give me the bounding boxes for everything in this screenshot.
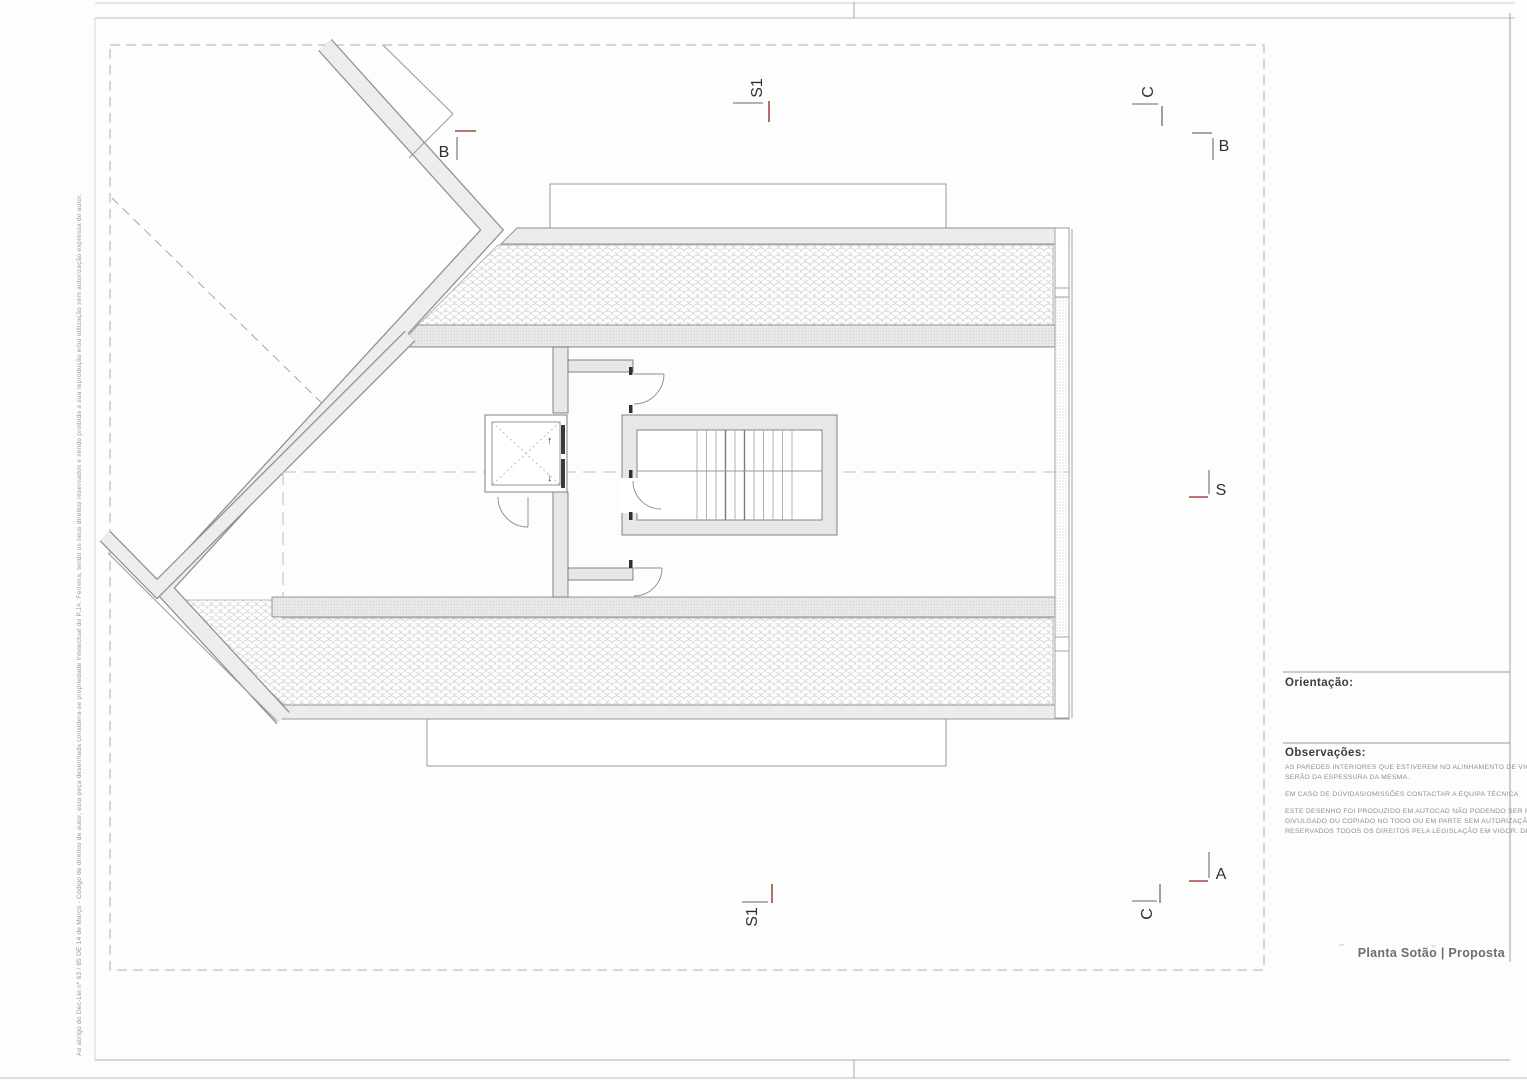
hidden-roof-edge xyxy=(112,198,332,413)
orientation-label: Orientação: xyxy=(1285,677,1353,689)
drawing-sheet: ↑ ↓ B S1 C B S xyxy=(0,0,1527,1080)
copyright-vertical-text: Ao abrigo do Dec-Lei nº 63 / 85 DE 14 de… xyxy=(76,41,83,1056)
section-letter-s1-bottom: S1 xyxy=(744,907,761,927)
floor-plan-canvas: ↑ ↓ B S1 C B S xyxy=(0,0,1527,1080)
observation-note-line: DIVULGADO OU COPIADO NO TODO OU EM PARTE… xyxy=(1285,818,1527,825)
section-letter-c-top: C xyxy=(1140,86,1157,98)
observation-note-line: RESERVADOS TODOS OS DIREITOS PELA LEGISL… xyxy=(1285,828,1527,835)
elevator-down-icon: ↓ xyxy=(547,472,553,484)
section-letter-c-bottom: C xyxy=(1139,908,1156,920)
elevator-up-icon: ↑ xyxy=(547,435,553,447)
elevator: ↑ ↓ xyxy=(485,415,567,492)
observation-note-line: EM CASO DE DÚVIDAS/OMISSÕES CONTACTAR A … xyxy=(1285,791,1519,798)
roof-hatch-bands xyxy=(175,245,1053,705)
bottom-dormer-outline xyxy=(427,718,946,766)
sheet-title: Planta Sotão | Proposta xyxy=(1290,946,1505,960)
observation-note-line: SERÃO DA ESPESSURA DA MESMA. xyxy=(1285,774,1409,781)
section-letter-s-right: S xyxy=(1216,482,1227,499)
page-frame xyxy=(0,2,1527,1078)
section-letter-s1-top: S1 xyxy=(749,78,766,98)
right-wall xyxy=(1055,228,1072,718)
elevator-door-bar xyxy=(561,425,565,454)
stairwell xyxy=(621,415,837,535)
top-dormer-outline xyxy=(550,184,946,230)
section-letter-b-left: B xyxy=(439,144,450,161)
observation-note-line: AS PAREDES INTERIORES QUE ESTIVEREM NO A… xyxy=(1285,764,1527,771)
elevator-door-bar xyxy=(561,459,565,488)
section-letter-b-right: B xyxy=(1219,138,1230,155)
section-letter-a-right: A xyxy=(1216,866,1227,883)
observation-note-line: ESTE DESENHO FOI PRODUZIDO EM AUTOCAD NÃ… xyxy=(1285,808,1527,815)
observations-label: Observações: xyxy=(1285,747,1366,759)
